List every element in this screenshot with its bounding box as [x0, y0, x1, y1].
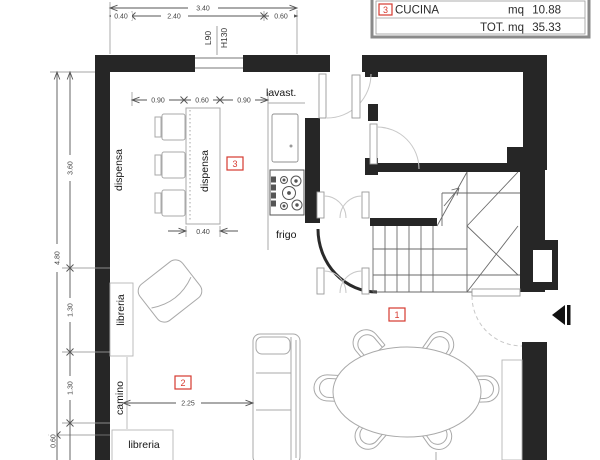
table-total-label: TOT. mq: [480, 22, 524, 34]
dim-kitchen-seg2: 0.60: [195, 98, 209, 105]
hall-door-leaf: [352, 75, 360, 118]
window-height-tag: H130: [219, 28, 229, 49]
dimension-living: 2.25: [123, 400, 253, 408]
double-door-leaf: [362, 192, 369, 218]
living-furniture: [135, 256, 522, 460]
fridge-label: frigo: [276, 229, 297, 241]
double-door-leaf: [317, 192, 324, 218]
dim-left-seg2: 1.30: [68, 303, 75, 317]
stair-walk-arrow: [444, 188, 459, 206]
wall-bottom-right: [522, 342, 547, 460]
living-tag: 1: [394, 310, 399, 320]
kitchen-window: L90 H130: [195, 26, 243, 72]
kitchen: 0.90 0.60 0.90 dispensa 0.40: [113, 87, 305, 250]
cooktop: [270, 170, 304, 215]
kitchen-tag: 3: [232, 159, 237, 169]
kitchen-door-leaf: [319, 74, 326, 118]
dim-kitchen-seg3: 0.90: [237, 98, 251, 105]
doors: [317, 74, 522, 346]
wall-stair-edge: [370, 218, 437, 226]
double-door-leaf: [362, 268, 369, 294]
fireplace-label: camino: [114, 381, 126, 415]
wall-top-left: [95, 55, 195, 72]
island-pantry-label: dispensa: [199, 150, 211, 192]
dim-top-seg2: 2.40: [167, 14, 181, 21]
entry-door-leaf: [472, 289, 520, 296]
wall-left: [95, 72, 110, 460]
dim-left-seg1: 3.60: [68, 161, 75, 175]
table-room-name: CUCINA: [395, 5, 439, 17]
double-door-leaf: [317, 268, 324, 294]
double-door-swing: [340, 196, 362, 218]
sofa: [253, 334, 300, 460]
room-door-leaf: [370, 124, 377, 164]
wall-top-mid: [243, 55, 330, 72]
dishwasher-label: lavast.: [266, 87, 296, 99]
dim-living-span: 2.25: [181, 401, 195, 408]
wall-pantry-label: dispensa: [113, 149, 125, 191]
table-area-value: 10.88: [532, 5, 561, 17]
table-total-value: 35.33: [532, 22, 561, 34]
stool: [155, 152, 185, 178]
dim-top-seg1: 0.40: [114, 14, 128, 21]
kitchen-door-swing: [327, 74, 371, 118]
sink-drain: [290, 145, 293, 148]
dim-island-width: 0.40: [196, 229, 210, 236]
staircase: [373, 172, 520, 292]
floor-plan-canvas: L90 H130 3.40 0.40 2.40 0.60 4.80: [0, 0, 600, 460]
stool: [155, 190, 185, 216]
stool: [155, 114, 185, 140]
armchair: [135, 256, 206, 325]
dimensions-top: 3.40 0.40 2.40 0.60: [110, 2, 297, 54]
wall-top-right: [362, 55, 547, 72]
floor-plan: L90 H130 3.40 0.40 2.40 0.60 4.80: [0, 0, 600, 460]
dim-left-overall: 4.80: [55, 251, 62, 265]
dim-top-seg3: 0.60: [274, 14, 288, 21]
dim-top-overall: 3.40: [196, 6, 210, 13]
dim-left-seg3: 1.30: [68, 381, 75, 395]
wall-room-right: [523, 72, 547, 152]
dim-left-seg4: 0.60: [51, 434, 58, 448]
dim-kitchen-seg1: 0.90: [151, 98, 165, 105]
cabinet-right: [502, 360, 522, 460]
bookcase-bottom-label: libreria: [128, 439, 160, 451]
sink: [272, 114, 298, 162]
area-summary-table: 3 CUCINA mq 10.88 TOT. mq 35.33: [372, 0, 589, 37]
wall-post-door: [368, 104, 378, 121]
wall-post-top: [365, 55, 378, 77]
dining-set: [313, 324, 499, 460]
entry-door-swing: [472, 296, 522, 346]
entry-arrow-icon: [552, 305, 571, 325]
flue-niche: [533, 250, 552, 282]
dining-table: [333, 347, 481, 437]
table-room-number: 3: [383, 5, 388, 15]
bookcase-left-label: libreria: [115, 294, 127, 326]
window-width-tag: L90: [203, 31, 213, 45]
table-unit-label: mq: [508, 5, 524, 17]
fireplace-tag: 2: [180, 378, 185, 388]
room-door-swing: [377, 127, 419, 169]
wall-mid-thin: [372, 163, 520, 172]
